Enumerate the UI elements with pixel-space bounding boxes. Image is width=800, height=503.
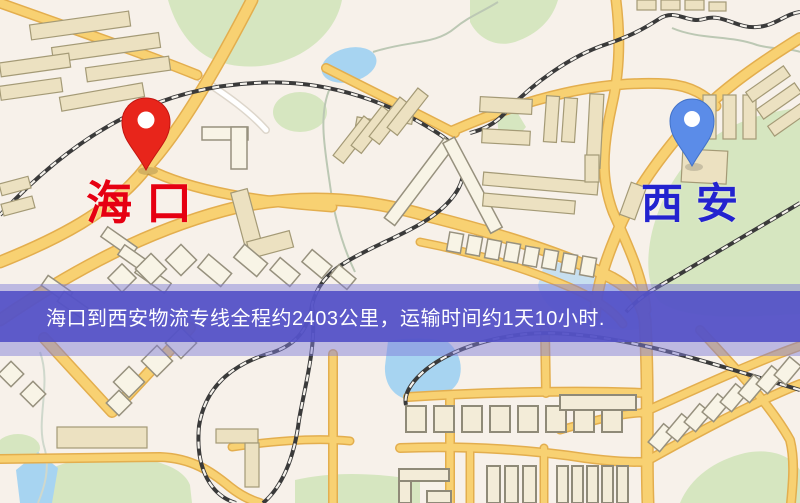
route-info-banner: 海口到西安物流专线全程约2403公里，运输时间约1天10小时. [0, 284, 800, 356]
origin-pin-shape[interactable] [122, 98, 170, 170]
map-viewport[interactable]: 海口 西安 海口到西安物流专线全程约2403公里，运输时间约1天10小时. [0, 0, 800, 503]
route-info-banner-inner: 海口到西安物流专线全程约2403公里，运输时间约1天10小时. [0, 291, 800, 342]
origin-pin-icon[interactable] [122, 98, 170, 175]
map-canvas [0, 0, 800, 503]
route-info-text: 海口到西安物流专线全程约2403公里，运输时间约1天10小时. [0, 302, 605, 331]
